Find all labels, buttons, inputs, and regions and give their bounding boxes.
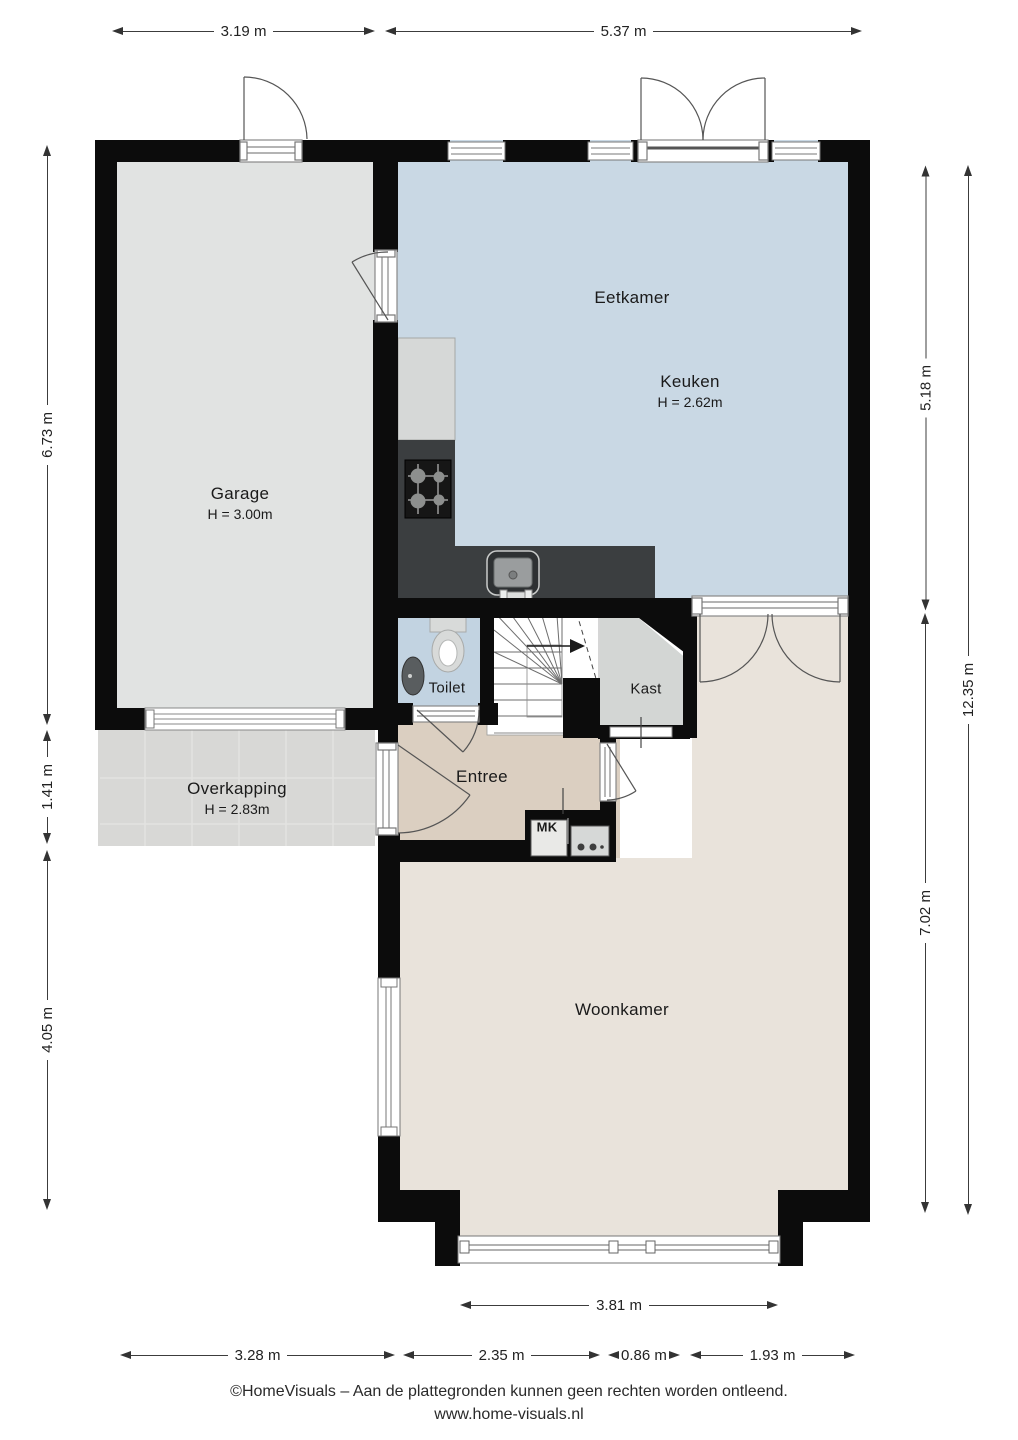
wall-stairs-corner <box>563 678 600 738</box>
wall-top-garage-left <box>95 140 242 162</box>
kitchen-counter-bottom <box>455 546 655 600</box>
wall-entree-left-upper <box>378 708 398 746</box>
garage-door-opening <box>145 708 345 730</box>
wall-toilet-right <box>480 600 494 715</box>
window-woonkamer-left <box>378 978 400 1136</box>
dim-top-kitchen: 5.37 m <box>385 22 862 40</box>
dim-bottom-2: 2.35 m <box>403 1346 600 1364</box>
window-kitchen-top-2 <box>588 142 633 160</box>
wall-bay-right <box>778 1190 870 1222</box>
dim-top-garage: 3.19 m <box>112 22 375 40</box>
door-garage-back <box>240 77 307 162</box>
wall-bay-right-cheek <box>778 1220 803 1266</box>
room-label-garage: Garage H = 3.00m <box>208 483 273 523</box>
window-kitchen-top-1 <box>448 142 505 160</box>
room-label-keuken: Keuken H = 2.62m <box>658 371 723 411</box>
dim-right-woonkamer: 7.02 m <box>916 613 934 1213</box>
door-kitchen-double <box>638 78 768 162</box>
woonkamer-floor-main <box>398 858 870 1198</box>
floorplan-drawing <box>0 0 1018 1440</box>
garage-floor <box>95 140 395 730</box>
meter-box <box>571 826 609 856</box>
window-kitchen-top-3 <box>772 142 820 160</box>
dim-right-kitchen: 5.18 m <box>917 166 935 611</box>
wall-bay-left-cheek <box>435 1220 460 1266</box>
wall-divider-lower <box>373 320 398 710</box>
kitchen-sink <box>487 551 539 602</box>
wall-bay-left <box>378 1190 460 1222</box>
wall-woonkamer-left-lower <box>378 1134 400 1194</box>
room-label-kast: Kast <box>630 679 661 699</box>
room-label-overkapping: Overkapping H = 2.83m <box>187 778 287 818</box>
room-label-entree: Entree <box>456 766 508 788</box>
wall-top-kitchen-mid <box>503 140 590 162</box>
wall-toilet-bottom-right <box>478 703 498 725</box>
room-label-eetkamer: Eetkamer <box>594 287 669 309</box>
dim-bottom-3: 0.86 m <box>608 1346 685 1364</box>
room-label-toilet: Toilet <box>429 678 466 698</box>
wall-divider-upper <box>373 140 398 252</box>
wall-toilet-bottom-left <box>396 703 413 725</box>
wall-garage-left <box>95 140 117 730</box>
woonkamer-floor-upper <box>692 612 848 862</box>
footer-url: www.home-visuals.nl <box>0 1406 1018 1424</box>
footer-disclaimer: ©HomeVisuals – Aan de plattegronden kunn… <box>0 1383 1018 1401</box>
dim-bottom-1: 3.28 m <box>120 1346 395 1364</box>
dim-bay-window: 3.81 m <box>460 1296 778 1314</box>
room-label-mk: MK <box>537 820 558 837</box>
window-woonkamer-bay <box>458 1236 780 1263</box>
dim-bottom-4: 1.93 m <box>690 1346 855 1364</box>
wall-entree-bottom <box>378 840 528 862</box>
floorplan: Garage H = 3.00m Eetkamer Keuken H = 2.6… <box>0 0 1018 1440</box>
dim-left-overkapping: 1.41 m <box>38 730 56 844</box>
wall-garage-bottom-left <box>95 708 147 730</box>
toilet-sink <box>402 657 424 695</box>
kitchen-cabinet <box>398 338 455 440</box>
dim-left-garage: 6.73 m <box>38 145 56 725</box>
dim-left-lower: 4.05 m <box>38 850 56 1210</box>
woonkamer-floor-bay <box>455 1190 780 1238</box>
wall-right-outer <box>848 140 870 1222</box>
wall-kast-right <box>683 650 697 738</box>
room-label-woonkamer: Woonkamer <box>575 999 669 1021</box>
dim-right-total: 12.35 m <box>959 165 977 1215</box>
stove <box>405 460 451 518</box>
